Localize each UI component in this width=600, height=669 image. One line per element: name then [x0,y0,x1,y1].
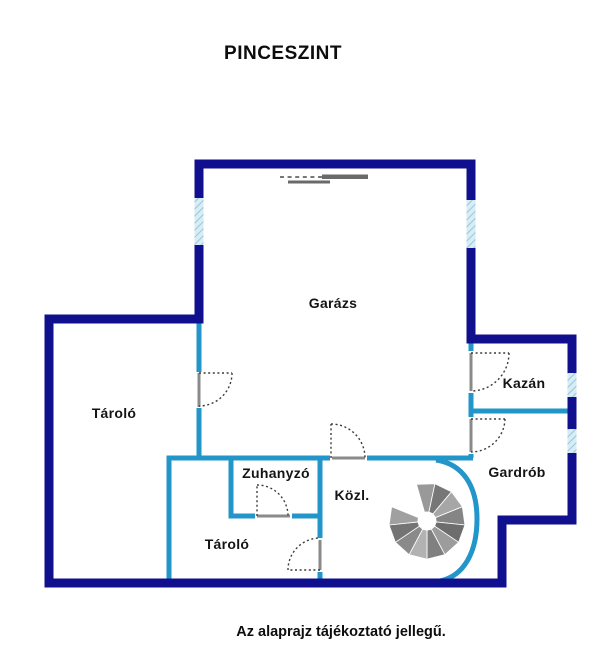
door-opening-tarolo-bottom [317,538,323,572]
room-label-zuhanyzo: Zuhanyzó [242,465,310,481]
room-label-kozl: Közl. [335,487,370,503]
window-symbol-gardrob [568,429,577,453]
floor-plan-page: PINCESZINT [0,0,600,669]
door-opening-garazs-kozl [330,455,367,461]
window-symbol-garage-left [195,198,204,245]
door-swing-tarolo-bottom [288,538,320,570]
door-opening-tarolo-left [196,372,202,408]
door-swing-garazs-kozl [331,424,365,458]
window-symbol-kazan [568,373,577,397]
floor-plan: Garázs Tároló Kazán Gardrób Zuhanyzó Köz… [0,0,600,669]
garage-door-symbol [280,175,368,184]
room-label-garazs: Garázs [309,295,358,311]
window-symbols [195,198,577,453]
window-symbol-garage-right [467,200,476,248]
door-opening-kazan [468,351,474,393]
room-label-gardrob: Gardrób [488,464,545,480]
outer-walls [49,164,572,583]
door-swing-gardrob [471,419,505,452]
spiral-staircase-icon [389,484,465,559]
door-opening-zuhanyzo [255,513,292,519]
floor-plan-drawing [0,0,600,669]
room-label-tarolo-left: Tároló [92,405,137,421]
door-swing-zuhanyzo [257,485,288,516]
room-label-kazan: Kazán [503,375,546,391]
footer-note: Az alaprajz tájékoztató jellegű. [236,624,446,640]
door-opening-gardrob [468,417,474,454]
room-label-tarolo-bottom: Tároló [205,536,250,552]
door-swing-tarolo-left [199,373,232,406]
